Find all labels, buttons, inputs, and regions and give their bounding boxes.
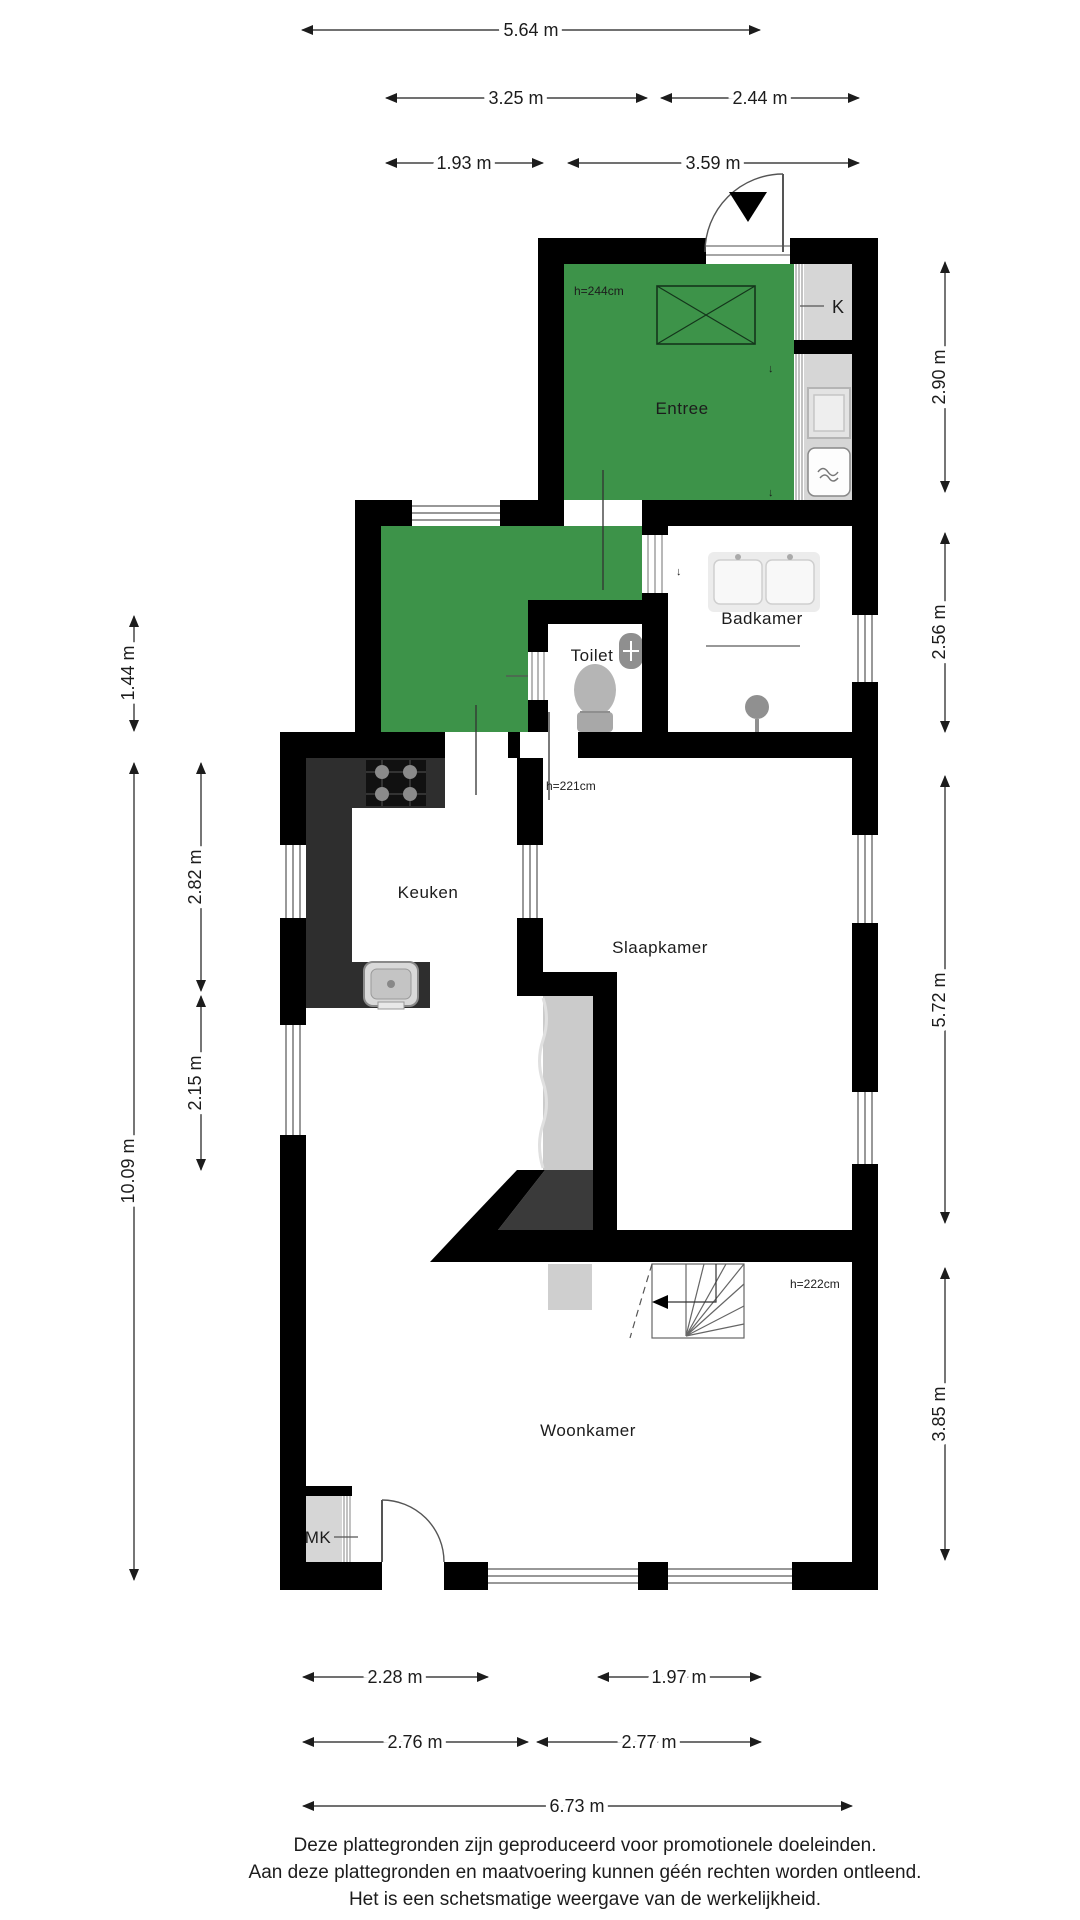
floorplan-canvas: Entree Badkamer Toilet Keuken Slaapkamer…	[0, 0, 1080, 1920]
dim-right-entree: 2.90 m	[929, 349, 949, 404]
dim-top-left3: 1.93 m	[436, 153, 491, 173]
slaapkamer-label: Slaapkamer	[612, 938, 708, 957]
woonkamer-label: Woonkamer	[540, 1421, 636, 1440]
boiler-icon	[808, 448, 850, 496]
toilet-label: Toilet	[571, 646, 614, 665]
entree-label: Entree	[655, 399, 708, 418]
door-badkamer	[642, 535, 668, 593]
slaapkamer-height-label: h=221cm	[546, 779, 596, 793]
keuken-label: Keuken	[398, 883, 459, 902]
floorplan-page: Entree Badkamer Toilet Keuken Slaapkamer…	[0, 0, 1080, 1920]
dim-right-woonkamer: 3.85 m	[929, 1386, 949, 1441]
dim-top-right2: 2.44 m	[732, 88, 787, 108]
dim-left-hal: 1.44 m	[118, 645, 138, 700]
woonkamer-height-label: h=222cm	[790, 1277, 840, 1291]
radiator	[548, 1264, 592, 1310]
footer-line-2: Aan deze plattegronden en maatvoering ku…	[249, 1862, 922, 1883]
double-washbasin-icon	[708, 552, 820, 612]
corner-sink-icon	[619, 633, 643, 669]
toilet-bowl-icon	[574, 664, 616, 732]
kast-floor	[804, 264, 852, 340]
meterkast-label: MK	[305, 1528, 332, 1547]
shower-head-icon	[745, 695, 769, 734]
window-slaapkamer-right-1	[852, 835, 878, 923]
staircase	[630, 1264, 744, 1338]
door-kast	[794, 264, 804, 340]
window-keuken-left-1	[280, 845, 306, 918]
dim-top-left2: 3.25 m	[488, 88, 543, 108]
window-keuken-left-2	[280, 1025, 306, 1135]
door-meterkast	[342, 1496, 352, 1562]
dim-bottom-2a: 2.76 m	[387, 1732, 442, 1752]
window-woonkamer-bottom-1	[488, 1562, 638, 1590]
dim-left-keuken-2: 2.15 m	[185, 1055, 205, 1110]
entrance-arrow-icon	[729, 192, 767, 222]
entree-height-label: h=244cm	[574, 284, 624, 298]
window-slaapkamer-right-2	[852, 1092, 878, 1164]
door-woonkamer	[382, 1500, 444, 1562]
stove-icon	[366, 760, 426, 806]
dim-bottom-1b: 1.97 m	[651, 1667, 706, 1687]
dim-top-overall: 5.64 m	[503, 20, 558, 40]
window-slaapkamer-left	[517, 845, 543, 918]
window-hal-top	[412, 500, 500, 526]
step-arrow-3: ↓	[676, 566, 682, 578]
counter-left	[306, 808, 352, 1008]
dim-top-right3: 3.59 m	[685, 153, 740, 173]
kitchen-sink-icon	[364, 962, 418, 1009]
dim-bottom-overall: 6.73 m	[549, 1796, 604, 1816]
step-arrow-1: ↓	[768, 363, 774, 375]
washer-icon	[808, 388, 850, 438]
kast-label: K	[832, 297, 844, 317]
footer-line-3: Het is een schetsmatige weergave van de …	[349, 1889, 821, 1910]
dim-left-overall: 10.09 m	[118, 1138, 138, 1203]
dim-bottom-1a: 2.28 m	[367, 1667, 422, 1687]
stairwell-void	[543, 996, 593, 1170]
window-woonkamer-bottom-2	[668, 1562, 792, 1590]
window-badkamer-right	[852, 615, 878, 682]
room-fills	[302, 264, 852, 1562]
dim-left-keuken-1: 2.82 m	[185, 849, 205, 904]
dim-right-slaapkamer: 5.72 m	[929, 972, 949, 1027]
door-utility	[794, 354, 804, 500]
footer-line-1: Deze plattegronden zijn geproduceerd voo…	[293, 1835, 876, 1856]
dim-right-badkamer: 2.56 m	[929, 604, 949, 659]
badkamer-label: Badkamer	[721, 609, 802, 628]
dim-bottom-2b: 2.77 m	[621, 1732, 676, 1752]
step-arrow-2: ↓	[768, 487, 774, 499]
